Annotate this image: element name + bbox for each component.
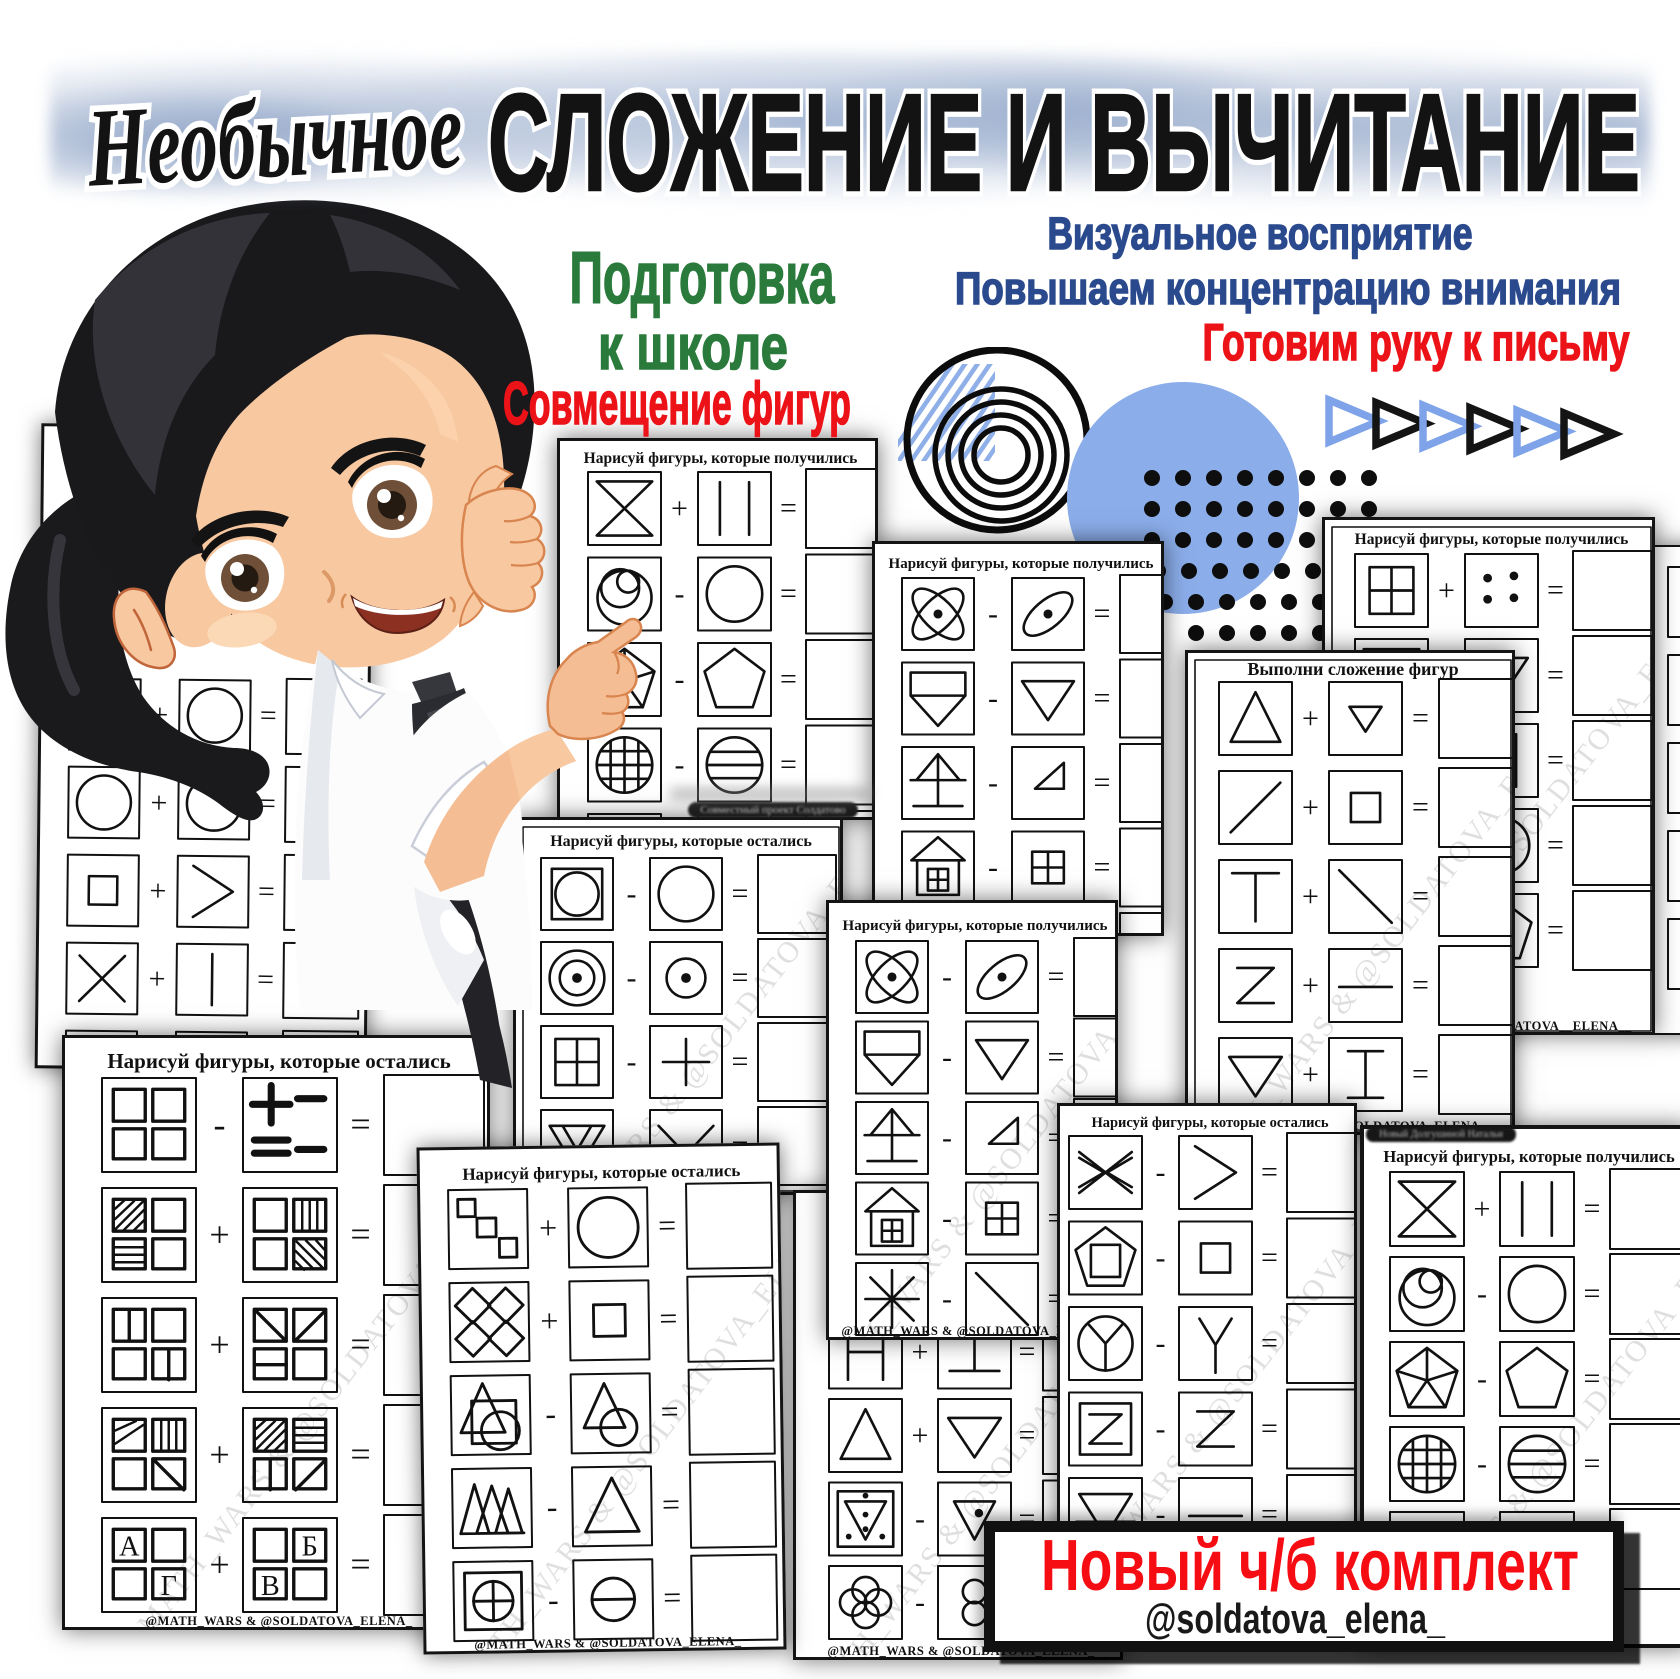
svg-text:Совмещение фигур: Совмещение фигур <box>503 370 851 437</box>
svg-text:Повышаем концентрацию внимания: Повышаем концентрацию внимания <box>955 263 1621 314</box>
svg-text:Готовим руку к письму: Готовим руку к письму <box>1203 314 1630 372</box>
svg-text:Визуальное восприятие: Визуальное восприятие <box>1048 208 1473 259</box>
svg-text:Подготовка: Подготовка <box>570 238 836 319</box>
svg-text:@soldatova_elena_: @soldatova_elena_ <box>1145 1595 1445 1641</box>
